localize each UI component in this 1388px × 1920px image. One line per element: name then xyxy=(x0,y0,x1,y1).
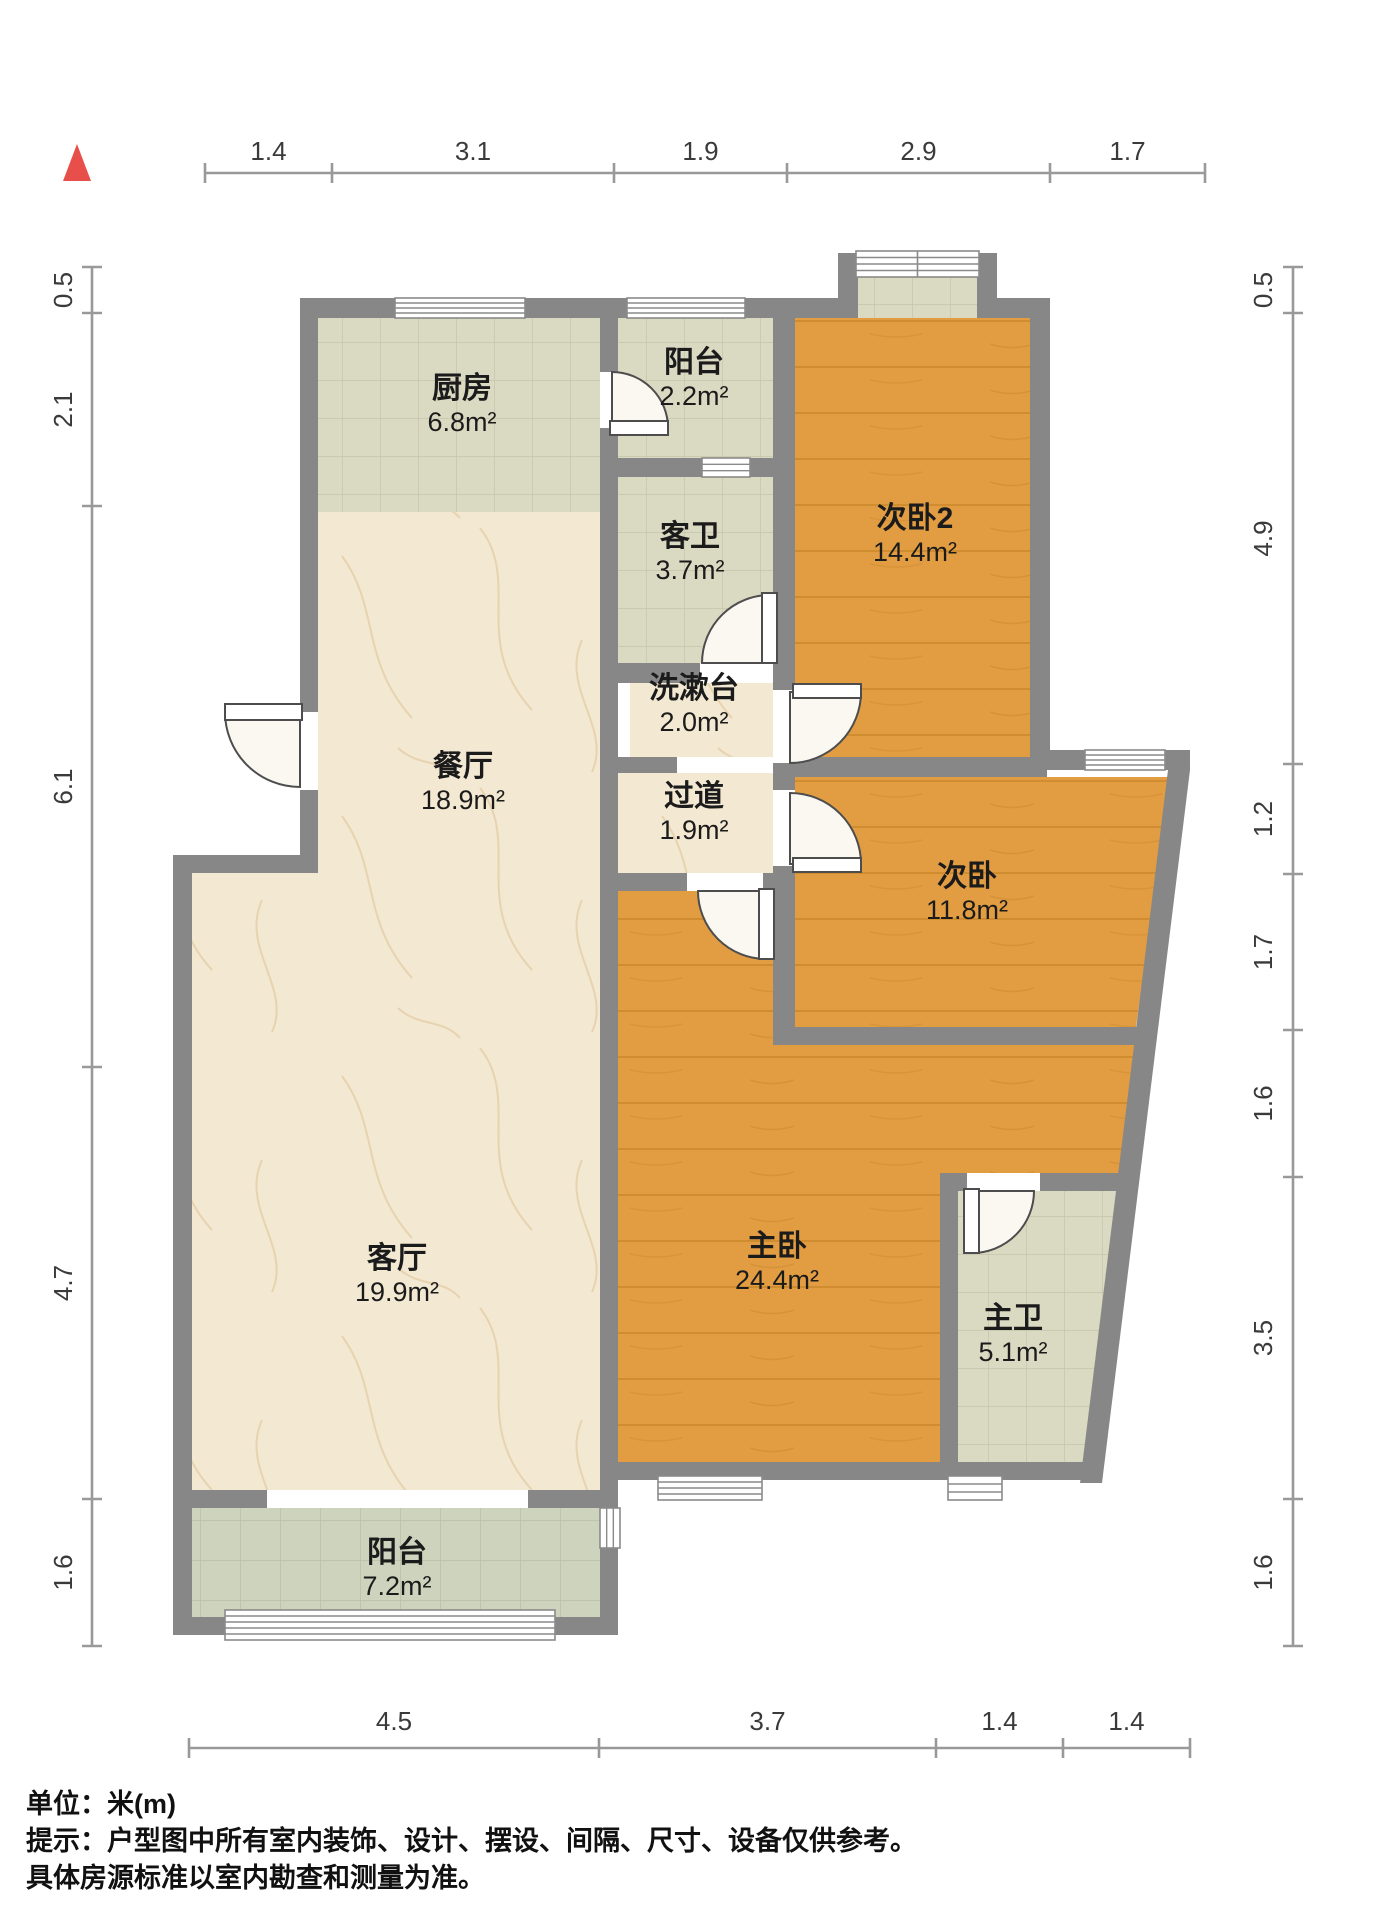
room-area: 2.0m² xyxy=(659,707,728,737)
wall xyxy=(528,1490,618,1508)
wall xyxy=(773,763,795,790)
master-bath-window xyxy=(948,1476,1002,1500)
dim-label: 0.5 xyxy=(1248,272,1278,308)
room-dining xyxy=(318,512,600,873)
room-label-balcony-top: 阳台2.2m² xyxy=(659,345,728,411)
unit-note: 单位：米(m) xyxy=(26,1786,1366,1823)
dim-label: 4.9 xyxy=(1248,520,1278,556)
dim-label: 6.1 xyxy=(48,768,78,804)
dim-label: 4.7 xyxy=(48,1265,78,1301)
room-name: 餐厅 xyxy=(433,750,493,783)
room-area: 5.1m² xyxy=(978,1337,1047,1367)
north-arrow-icon xyxy=(63,144,91,181)
dim-label: 1.2 xyxy=(1248,801,1278,837)
dim-label: 2.9 xyxy=(900,136,936,166)
room-floors xyxy=(192,277,1170,1617)
wall xyxy=(940,1173,958,1465)
dim-label: 1.6 xyxy=(48,1554,78,1590)
room-area: 11.8m² xyxy=(926,895,1008,925)
dim-label: 0.5 xyxy=(48,272,78,308)
bedroom2-window xyxy=(1085,750,1165,770)
wall xyxy=(795,1027,1145,1045)
room-label-dining: 餐厅18.9m² xyxy=(421,750,505,815)
room-label-living: 客厅19.9m² xyxy=(355,1241,439,1307)
north-indicator xyxy=(63,144,91,181)
dimension-top: 1.43.11.92.91.7 xyxy=(205,136,1205,183)
room-label-guest-bath: 客卫3.7m² xyxy=(655,519,724,585)
dim-label: 1.7 xyxy=(1248,934,1278,970)
room-living xyxy=(192,873,600,1490)
balcony-side-window xyxy=(600,1508,620,1548)
room-name: 阳台 xyxy=(367,1535,427,1569)
room-floor xyxy=(192,873,600,1490)
wall xyxy=(173,855,192,1635)
room-label-balcony-bottom: 阳台7.2m² xyxy=(362,1535,431,1601)
dim-label: 1.4 xyxy=(250,136,286,166)
room-area: 7.2m² xyxy=(362,1571,431,1601)
door-leaf xyxy=(964,1189,979,1253)
room-name: 厨房 xyxy=(432,372,492,405)
dim-label: 1.9 xyxy=(682,136,718,166)
wall xyxy=(600,298,618,372)
dim-label: 1.7 xyxy=(1109,136,1145,166)
entry-door xyxy=(225,704,302,787)
wall xyxy=(192,1490,267,1508)
dimension-left: 0.52.16.14.71.6 xyxy=(48,267,102,1646)
dim-label: 3.7 xyxy=(749,1706,785,1736)
wall xyxy=(173,855,318,873)
floor-plan-canvas: 厨房6.8m²阳台2.2m²次卧214.4m²客卫3.7m²洗漱台2.0m²餐厅… xyxy=(0,0,1388,1920)
wall xyxy=(1030,298,1050,757)
wall xyxy=(300,298,318,712)
room-area: 14.4m² xyxy=(873,537,957,567)
disclaimer-notes: 单位：米(m) 提示：户型图中所有室内装饰、设计、摆设、间隔、尺寸、设备仅供参考… xyxy=(26,1786,1366,1897)
room-name: 次卧 xyxy=(937,860,997,893)
room-label-master-bath: 主卫5.1m² xyxy=(978,1302,1047,1367)
dim-label: 3.5 xyxy=(1248,1320,1278,1356)
door-leaf xyxy=(762,593,777,663)
balcony-bottom-window xyxy=(225,1610,555,1640)
master-bottom-window xyxy=(658,1476,762,1500)
room-label-master: 主卧24.4m² xyxy=(735,1230,819,1295)
room-area: 18.9m² xyxy=(421,785,505,815)
balcony-top-window xyxy=(627,298,745,318)
room-name: 主卫 xyxy=(983,1302,1043,1335)
dimension-bottom: 4.53.71.41.4 xyxy=(189,1706,1190,1758)
dim-label: 1.4 xyxy=(981,1706,1017,1736)
dim-label: 1.6 xyxy=(1248,1085,1278,1121)
door-leaf xyxy=(610,421,668,435)
door-leaf xyxy=(225,704,302,720)
door-leaf xyxy=(759,889,774,959)
door-leaf xyxy=(793,858,861,872)
room-name: 过道 xyxy=(664,780,724,813)
room-name: 阳台 xyxy=(664,345,724,379)
dim-label: 2.1 xyxy=(48,391,78,427)
dim-label: 3.1 xyxy=(455,136,491,166)
room-label-bedroom2-2: 次卧214.4m² xyxy=(873,502,957,567)
kitchen-window xyxy=(395,298,525,318)
wall xyxy=(600,428,618,1480)
wall xyxy=(1040,1173,1125,1191)
room-name: 次卧2 xyxy=(877,502,954,535)
floor-plan-page: 厨房6.8m²阳台2.2m²次卧214.4m²客卫3.7m²洗漱台2.0m²餐厅… xyxy=(0,0,1388,1920)
wall xyxy=(838,253,858,318)
wall xyxy=(610,757,677,773)
room-name: 客厅 xyxy=(367,1241,427,1275)
door-swing-arc xyxy=(225,712,300,787)
room-area: 24.4m² xyxy=(735,1265,819,1295)
dim-label: 1.4 xyxy=(1108,1706,1144,1736)
room-floor xyxy=(318,512,600,873)
room-label-kitchen: 厨房6.8m² xyxy=(427,372,496,437)
room-name: 洗漱台 xyxy=(649,671,739,705)
room-area: 6.8m² xyxy=(427,407,496,437)
room-floor xyxy=(858,277,977,318)
wall xyxy=(795,757,1047,777)
disclaimer-line2: 具体房源标准以室内勘查和测量为准。 xyxy=(26,1860,1366,1897)
door-leaf xyxy=(793,684,861,698)
room-area: 1.9m² xyxy=(659,815,728,845)
dim-label: 1.6 xyxy=(1248,1554,1278,1590)
room-label-hallway: 过道1.9m² xyxy=(659,780,728,845)
wall xyxy=(618,873,687,891)
disclaimer-line1: 提示：户型图中所有室内装饰、设计、摆设、间隔、尺寸、设备仅供参考。 xyxy=(26,1823,1366,1860)
room-label-bedroom2: 次卧11.8m² xyxy=(926,860,1008,925)
bay-window xyxy=(856,251,979,277)
dim-label: 4.5 xyxy=(376,1706,412,1736)
wall xyxy=(977,253,997,318)
room-label-washstand: 洗漱台2.0m² xyxy=(649,671,739,737)
room-area: 3.7m² xyxy=(655,555,724,585)
dimension-right: 0.54.91.21.71.63.51.6 xyxy=(1248,267,1303,1646)
guest-bath-window xyxy=(702,458,750,477)
room-area: 2.2m² xyxy=(659,381,728,411)
room-area: 19.9m² xyxy=(355,1277,439,1307)
wall xyxy=(773,891,795,1045)
room-name: 主卧 xyxy=(747,1230,807,1263)
room-name: 客卫 xyxy=(660,519,720,553)
